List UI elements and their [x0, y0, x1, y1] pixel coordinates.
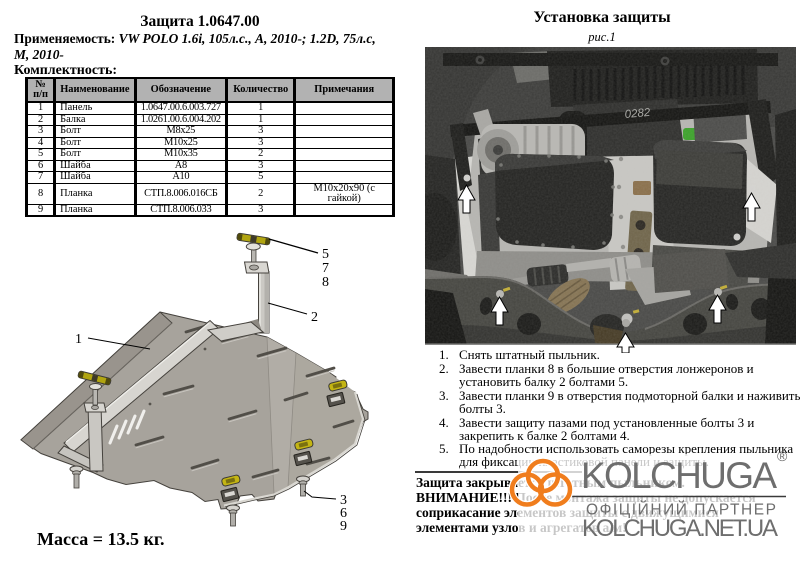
svg-text:7: 7 [322, 261, 329, 276]
svg-text:2: 2 [311, 310, 318, 325]
svg-text:9: 9 [340, 519, 347, 534]
svg-text:1: 1 [75, 332, 82, 347]
svg-text:KOLCHUGA: KOLCHUGA [581, 455, 777, 496]
svg-text:KOLCHUGA.NET.UA: KOLCHUGA.NET.UA [582, 515, 778, 542]
svg-text:8: 8 [322, 275, 329, 290]
svg-text:5: 5 [322, 247, 329, 262]
svg-text:®: ® [777, 448, 788, 464]
